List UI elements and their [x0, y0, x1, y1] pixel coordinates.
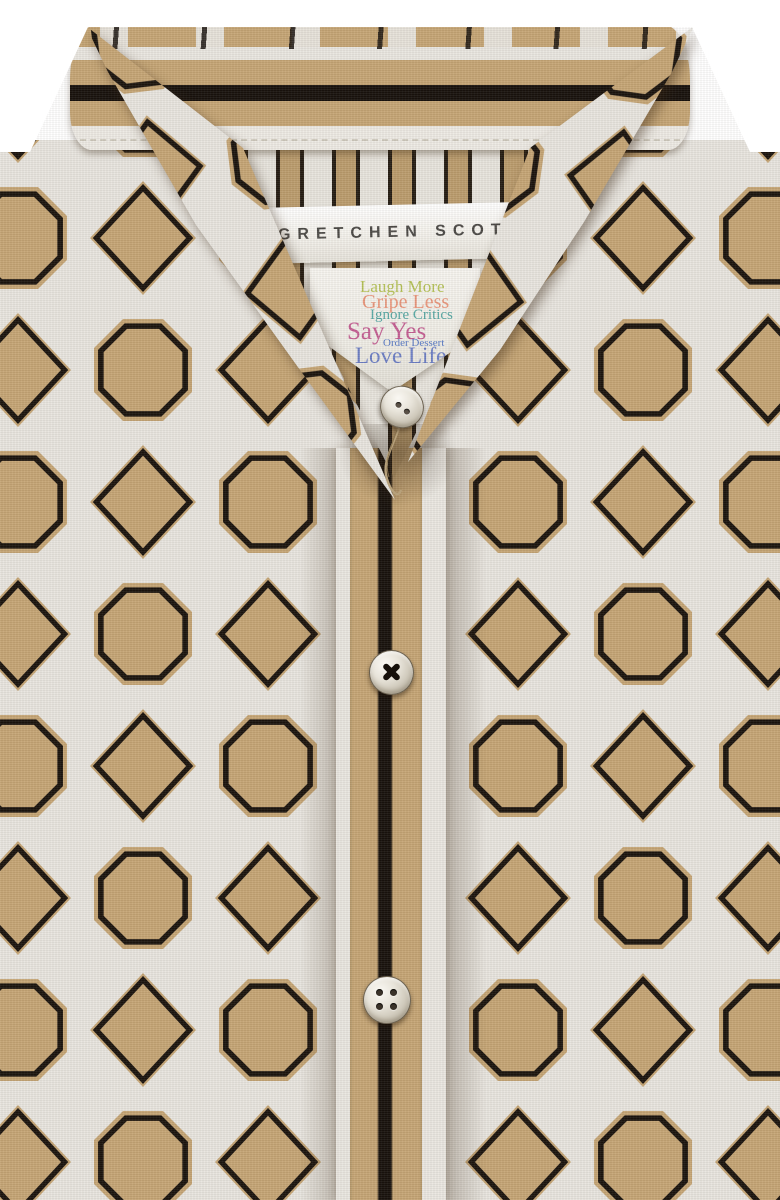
- shirt-product-photo: GRETCHEN SCOTT Laugh More Gripe Less Ign…: [0, 0, 780, 1200]
- background-top: [0, 0, 780, 27]
- middle-button: [369, 650, 414, 695]
- bottom-button: [363, 976, 411, 1024]
